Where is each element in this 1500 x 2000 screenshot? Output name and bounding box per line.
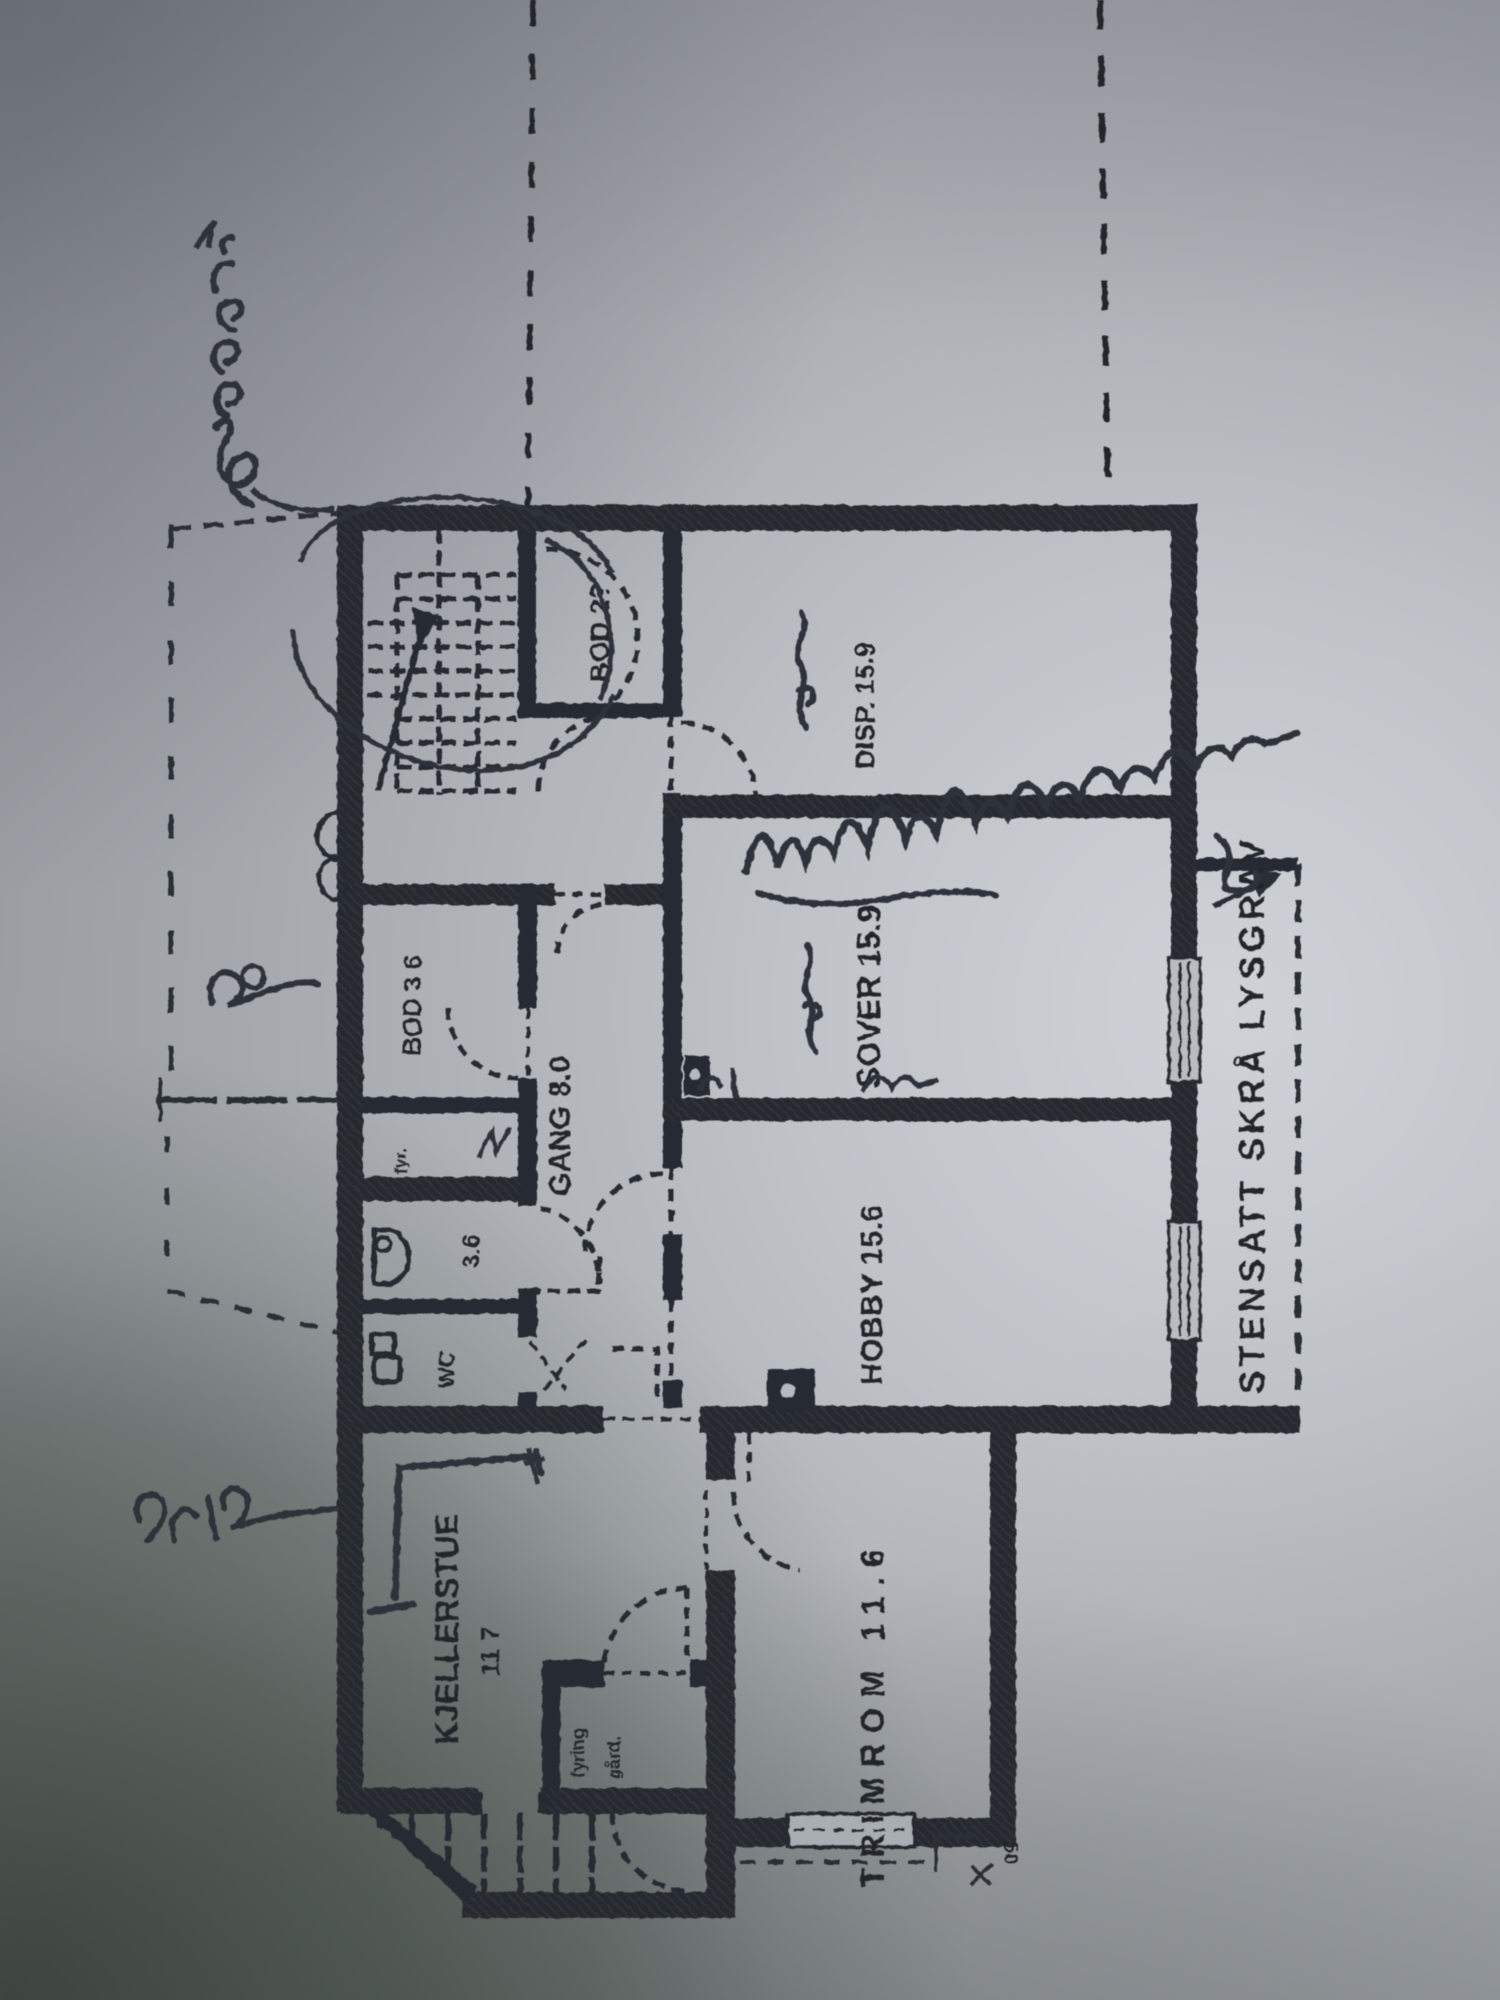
svg-text:DISP. 15.9: DISP. 15.9 [850,642,880,769]
svg-text:fyr.: fyr. [391,1148,410,1174]
svg-text:50: 50 [999,1842,1021,1864]
svg-text:GANG 8.0: GANG 8.0 [544,1056,577,1196]
svg-text:fyring: fyring [568,1728,588,1778]
svg-text:HOBBY 15.6: HOBBY 15.6 [854,1205,889,1385]
svg-text:11 7: 11 7 [475,1627,505,1676]
svg-text:TRIMROM 11.6: TRIMROM 11.6 [854,1539,891,1888]
svg-text:gård.: gård. [604,1736,624,1780]
svg-text:SOVER 15.9: SOVER 15.9 [851,905,887,1088]
svg-text:WC: WC [434,1351,459,1388]
svg-text:KJELLERSTUE: KJELLERSTUE [429,1514,465,1745]
svg-text:BOD 3 6: BOD 3 6 [397,955,427,1056]
svg-text:3.6: 3.6 [458,1235,485,1268]
svg-text:STENSATT SKRÅ LYSGRAV: STENSATT SKRÅ LYSGRAV [1232,835,1272,1394]
